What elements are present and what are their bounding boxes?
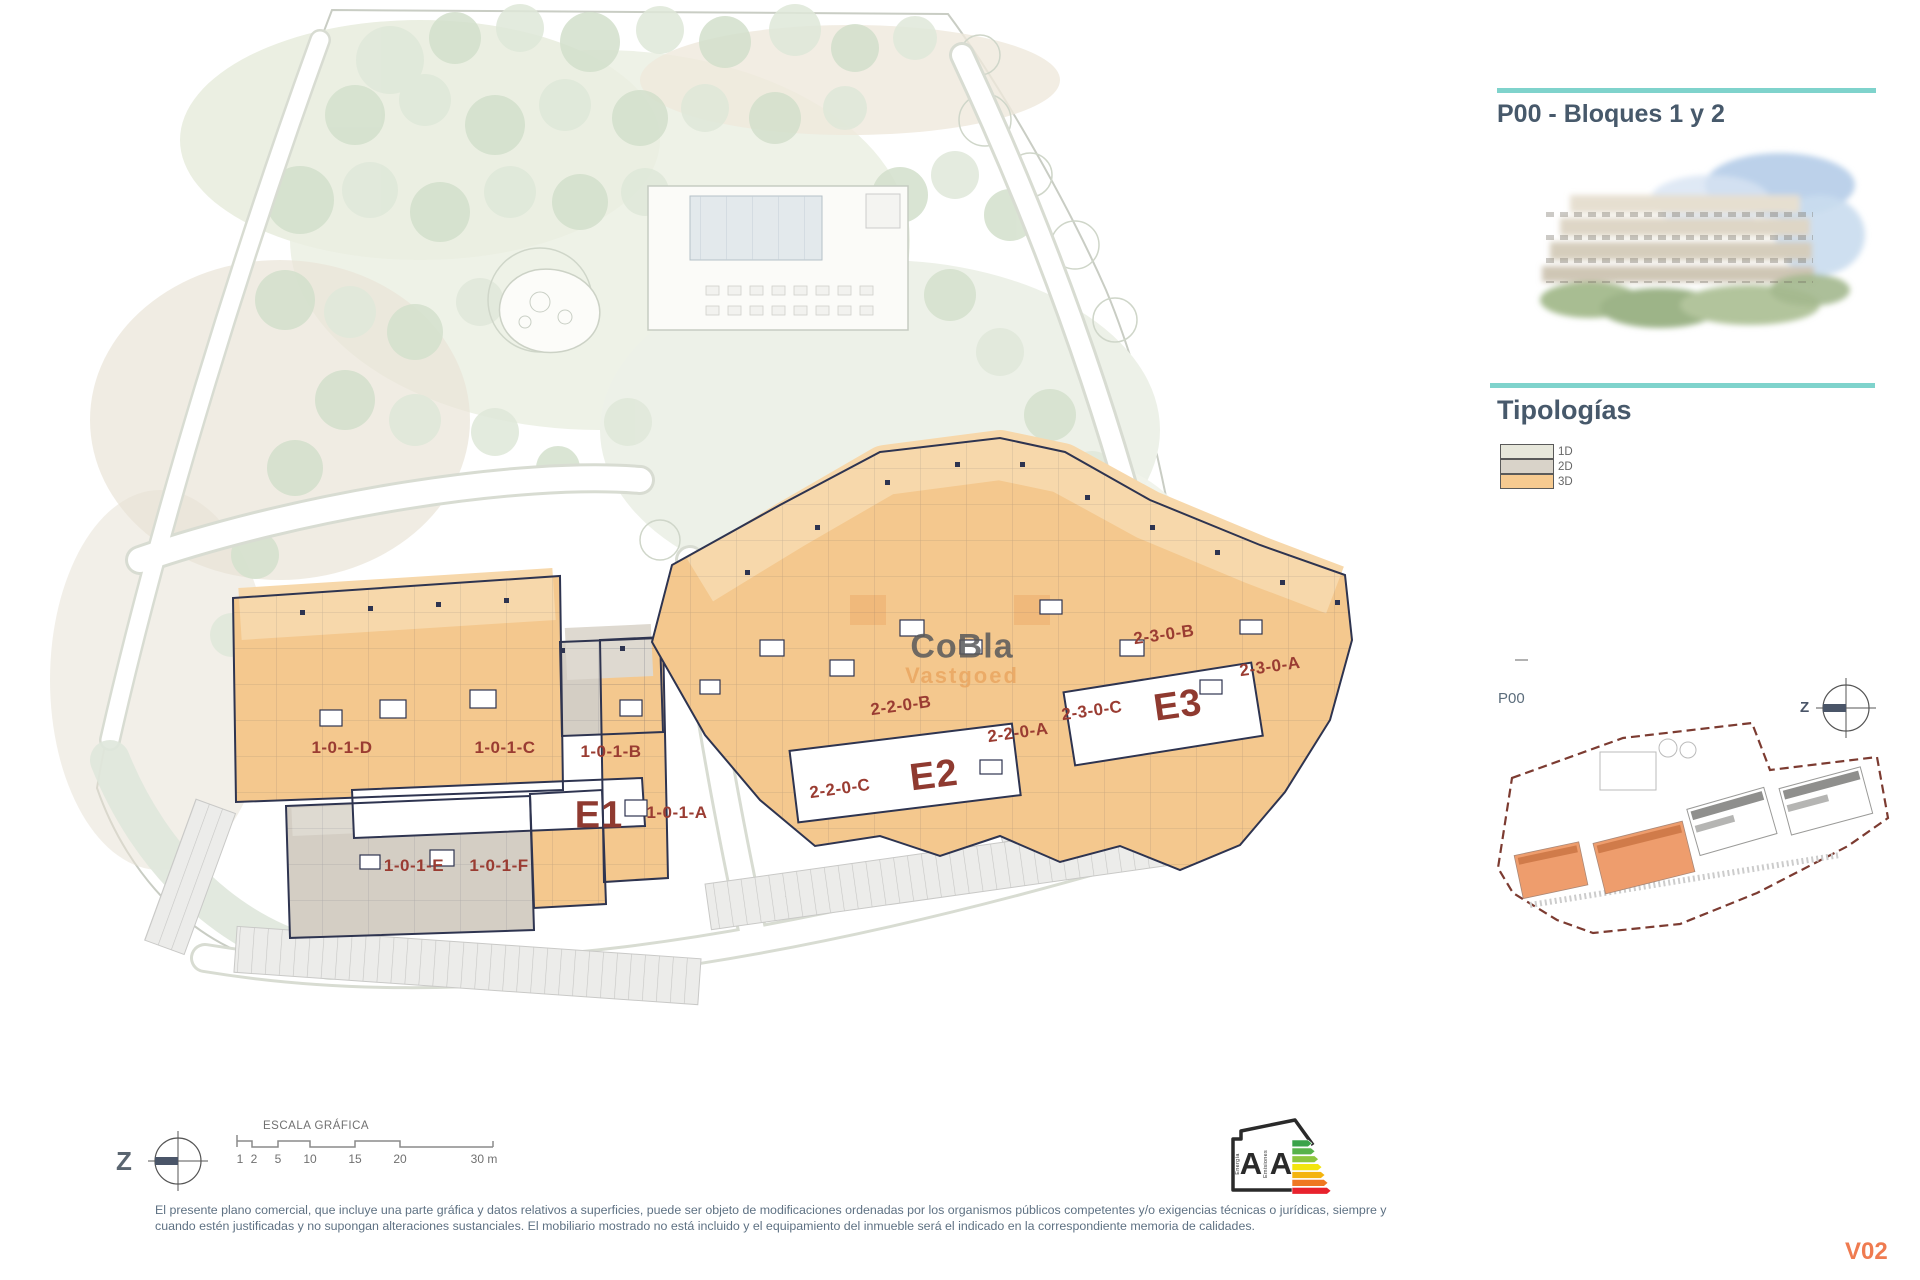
legend-swatch-2d [1500,459,1554,474]
divider-tipologias [1490,383,1875,388]
scale-tick: 10 [303,1152,316,1166]
legend-swatch-1d [1500,444,1554,459]
scale-bar-graphic [237,1135,493,1147]
scale-tick: 1 [237,1152,244,1166]
keyplan-minimap [1498,660,1888,933]
disclaimer-line-1: El presente plano comercial, que incluye… [155,1202,1386,1218]
legend-item-1d: 1D [1500,444,1573,459]
watermark-brand-sub: Vastgoed [905,663,1019,689]
scale-tick: 30 m [471,1152,498,1166]
scale-tick: 15 [348,1152,361,1166]
typology-legend: 1D 2D 3D [1500,444,1573,489]
version-badge: V02 [1845,1238,1888,1266]
page-title: P00 - Bloques 1 y 2 [1497,100,1725,129]
unit-label: 1-0-1-C [474,738,535,758]
unit-label: 1-0-1-A [646,803,707,823]
plan-sheet: CoBla Vastgoed 1-0-1-D 1-0-1-C 1-0-1-B 1… [0,0,1920,1280]
legend-label-3d: 3D [1558,476,1573,488]
divider-top [1497,88,1876,93]
unit-label: 1-0-1-D [311,738,372,758]
playground [499,269,599,352]
building-render-image [1540,153,1865,328]
unit-label: 1-0-1-E [384,856,444,876]
legend-item-3d: 3D [1500,474,1573,489]
energy-letter-energia: A [1240,1146,1262,1182]
entrance-label-e2: E2 [907,752,960,801]
unit-label: 1-0-1-B [580,742,641,762]
unit-label: 1-0-1-F [469,856,528,876]
emissions-axis-label: Emisiones [1263,1150,1269,1178]
north-compass-keyplan [1816,678,1876,738]
pool-area [648,186,908,330]
entrance-label-e3: E3 [1151,681,1205,730]
energy-axis-label: Energía [1235,1153,1241,1174]
north-letter-keyplan: Z [1800,699,1809,716]
legend-item-2d: 2D [1500,459,1573,474]
energy-letter-emisiones: A [1270,1146,1292,1182]
legend-swatch-3d [1500,474,1554,489]
tipologias-title: Tipologías [1497,395,1632,426]
keyplan-floor-label: P00 [1498,690,1525,707]
entrance-label-e1: E1 [575,795,623,838]
legend-label-2d: 2D [1558,461,1573,473]
watermark-brand: CoBla [910,628,1013,667]
scale-bar-title: ESCALA GRÁFICA [263,1120,369,1132]
scale-tick: 2 [251,1152,258,1166]
scale-tick: 5 [275,1152,282,1166]
legend-label-1d: 1D [1558,446,1573,458]
north-letter-main: Z [116,1146,132,1177]
disclaimer-line-2: cuando estén justificadas y no supongan … [155,1218,1255,1234]
north-compass-main [148,1131,208,1191]
scale-tick: 20 [393,1152,406,1166]
